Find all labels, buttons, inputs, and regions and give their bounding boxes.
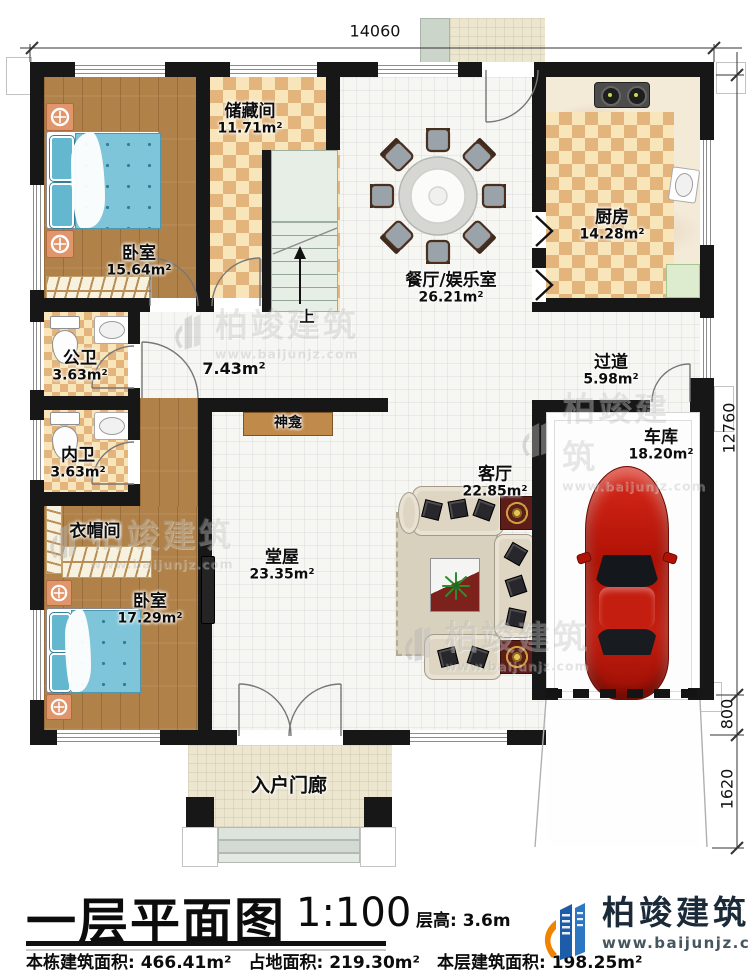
car-rear-window: [596, 629, 658, 655]
label-living: 客厅 22.85m²: [462, 466, 527, 501]
nightstand-knob-icon: [50, 234, 70, 254]
tv-hall: [201, 556, 215, 624]
kitchen-opening-2: [532, 268, 546, 302]
sofa-cushion: [467, 646, 490, 669]
window: [75, 62, 165, 77]
label-passage: 过道 5.98m²: [583, 354, 638, 389]
public-wc-door-opening: [128, 344, 140, 388]
title-underline: [26, 941, 386, 946]
car-windshield: [594, 555, 660, 587]
wall-garage-top-left: [532, 400, 650, 412]
wall-bedroom1-right: [196, 77, 210, 312]
porch-step-3: [218, 853, 360, 863]
wall-storage-right: [326, 62, 340, 150]
label-stairs-up: 上: [299, 309, 314, 326]
kitchen-sink: [668, 166, 700, 204]
window: [57, 730, 160, 745]
window: [700, 140, 714, 245]
sofa-cushion: [504, 542, 529, 567]
kitchen-opening-1: [532, 212, 546, 248]
brand-logo: 柏竣建筑 www.baijunjz.com: [538, 896, 750, 962]
wall-hall-top: [198, 398, 388, 412]
porch-step-1: [218, 827, 360, 840]
sofa-cushion: [505, 607, 526, 628]
window: [700, 318, 714, 378]
label-kitchen: 厨房 14.28m²: [579, 209, 644, 244]
driveway: [546, 700, 700, 846]
sofa-bottom: [424, 634, 502, 680]
stairs: [271, 222, 338, 312]
wall-stairs-rail: [262, 150, 271, 312]
wall-wc-bottom-divider: [30, 492, 140, 506]
window: [30, 420, 44, 480]
brand-website: www.baijunjz.com: [602, 934, 750, 952]
stove: [594, 82, 650, 108]
label-bedroom-2: 卧室 17.29m²: [117, 593, 182, 628]
label-corridor-area: 7.43m²: [202, 360, 265, 378]
brand-logo-icon: [538, 896, 596, 962]
side-table: [500, 496, 534, 530]
window: [30, 322, 44, 390]
wall-garage-left: [532, 412, 546, 700]
coffee-table: [430, 558, 480, 612]
exterior-pier-topleft: [6, 57, 32, 95]
label-public-wc: 公卫 3.63m²: [52, 350, 107, 385]
burner: [601, 86, 621, 106]
label-hall: 堂屋 23.35m²: [249, 549, 314, 584]
garage-door-dashed: [546, 689, 700, 698]
car: [585, 466, 669, 700]
sofa-right: [494, 534, 536, 638]
porch-pillar-base-right: [360, 827, 396, 867]
floor-kitchen: [546, 112, 674, 298]
wall-garage-top-right: [690, 378, 714, 412]
inner-wc-door-opening: [128, 440, 140, 484]
nightstand-knob-icon: [50, 698, 68, 716]
toilet-tank: [50, 316, 80, 329]
sofa-cushion: [505, 575, 528, 598]
dining-table-set: [370, 128, 506, 264]
side-table: [500, 640, 534, 674]
basin: [99, 321, 125, 339]
nightstand: [46, 694, 72, 720]
cloakroom-rack-side: [46, 504, 62, 574]
nightstand: [46, 230, 74, 258]
car-roof: [599, 587, 655, 629]
label-porch: 入户门廊: [251, 775, 327, 796]
nightstand-knob-icon: [50, 107, 70, 127]
sofa-cushion: [421, 499, 443, 521]
basin: [673, 172, 694, 198]
bed-bedroom-1: [46, 131, 160, 229]
bed-sheet: [65, 609, 91, 692]
porch-pillar-base-left: [182, 827, 218, 867]
terrace-top: [450, 18, 545, 63]
nightstand-knob-icon: [50, 584, 68, 602]
porch-pillar-right: [364, 797, 392, 827]
wall-kitchen-bottom: [532, 298, 714, 312]
bed-sheet: [71, 132, 105, 228]
sofa-armrest: [398, 492, 420, 534]
pillow: [50, 183, 74, 228]
label-inner-wc: 内卫 3.63m²: [50, 447, 105, 482]
storage-door-opening: [214, 298, 262, 312]
brand-company-name: 柏竣建筑: [602, 896, 750, 931]
cloakroom-rack: [62, 546, 152, 578]
label-storage: 储藏间 11.71m²: [217, 103, 282, 138]
window: [378, 62, 458, 77]
porch-step-2: [218, 840, 360, 853]
floor-height: 层高: 3.6m: [416, 906, 511, 931]
porch-pillar-left: [186, 797, 214, 827]
sofa-cushion: [472, 498, 495, 521]
toilet-tank: [50, 412, 80, 425]
bedroom1-door-opening: [150, 298, 196, 312]
plant-icon: [431, 559, 481, 613]
window: [30, 185, 44, 290]
wall-wc-top-divider: [30, 396, 140, 410]
basin: [99, 417, 125, 435]
dim-right-1620: 1620: [718, 769, 737, 810]
terrace-top-deck: [420, 18, 450, 63]
entry-door-opening: [237, 730, 343, 745]
kitchen-counter: [666, 264, 700, 298]
nightstand: [46, 103, 74, 131]
label-shrine: 神龛: [274, 416, 302, 432]
exterior-pier-topright: [716, 62, 746, 94]
window: [410, 730, 507, 745]
label-cloakroom: 衣帽间: [70, 522, 121, 541]
drawing-scale: 1:100: [296, 890, 411, 936]
washbasin: [94, 412, 130, 440]
nightstand: [46, 580, 72, 606]
title-underline-shadow: [26, 949, 386, 951]
sofa-cushion: [437, 646, 459, 668]
label-garage: 车库 18.20m²: [628, 429, 693, 464]
burner: [627, 86, 647, 106]
dim-right-800: 800: [718, 699, 737, 730]
floorplan-canvas: 14060 12760 800 1620 卧室 15.64m² 储藏间 11.7…: [0, 0, 750, 974]
dim-right-height: 12760: [720, 403, 739, 454]
sofa-cushion: [448, 499, 469, 520]
terrace-door-opening: [482, 62, 534, 77]
label-bedroom-1: 卧室 15.64m²: [106, 245, 171, 280]
dim-top-width: 14060: [350, 22, 401, 41]
window: [30, 610, 44, 700]
washbasin: [94, 316, 130, 344]
window: [230, 62, 317, 77]
label-dining: 餐厅/娱乐室 26.21m²: [405, 272, 496, 307]
stairs-landing: [271, 150, 338, 222]
